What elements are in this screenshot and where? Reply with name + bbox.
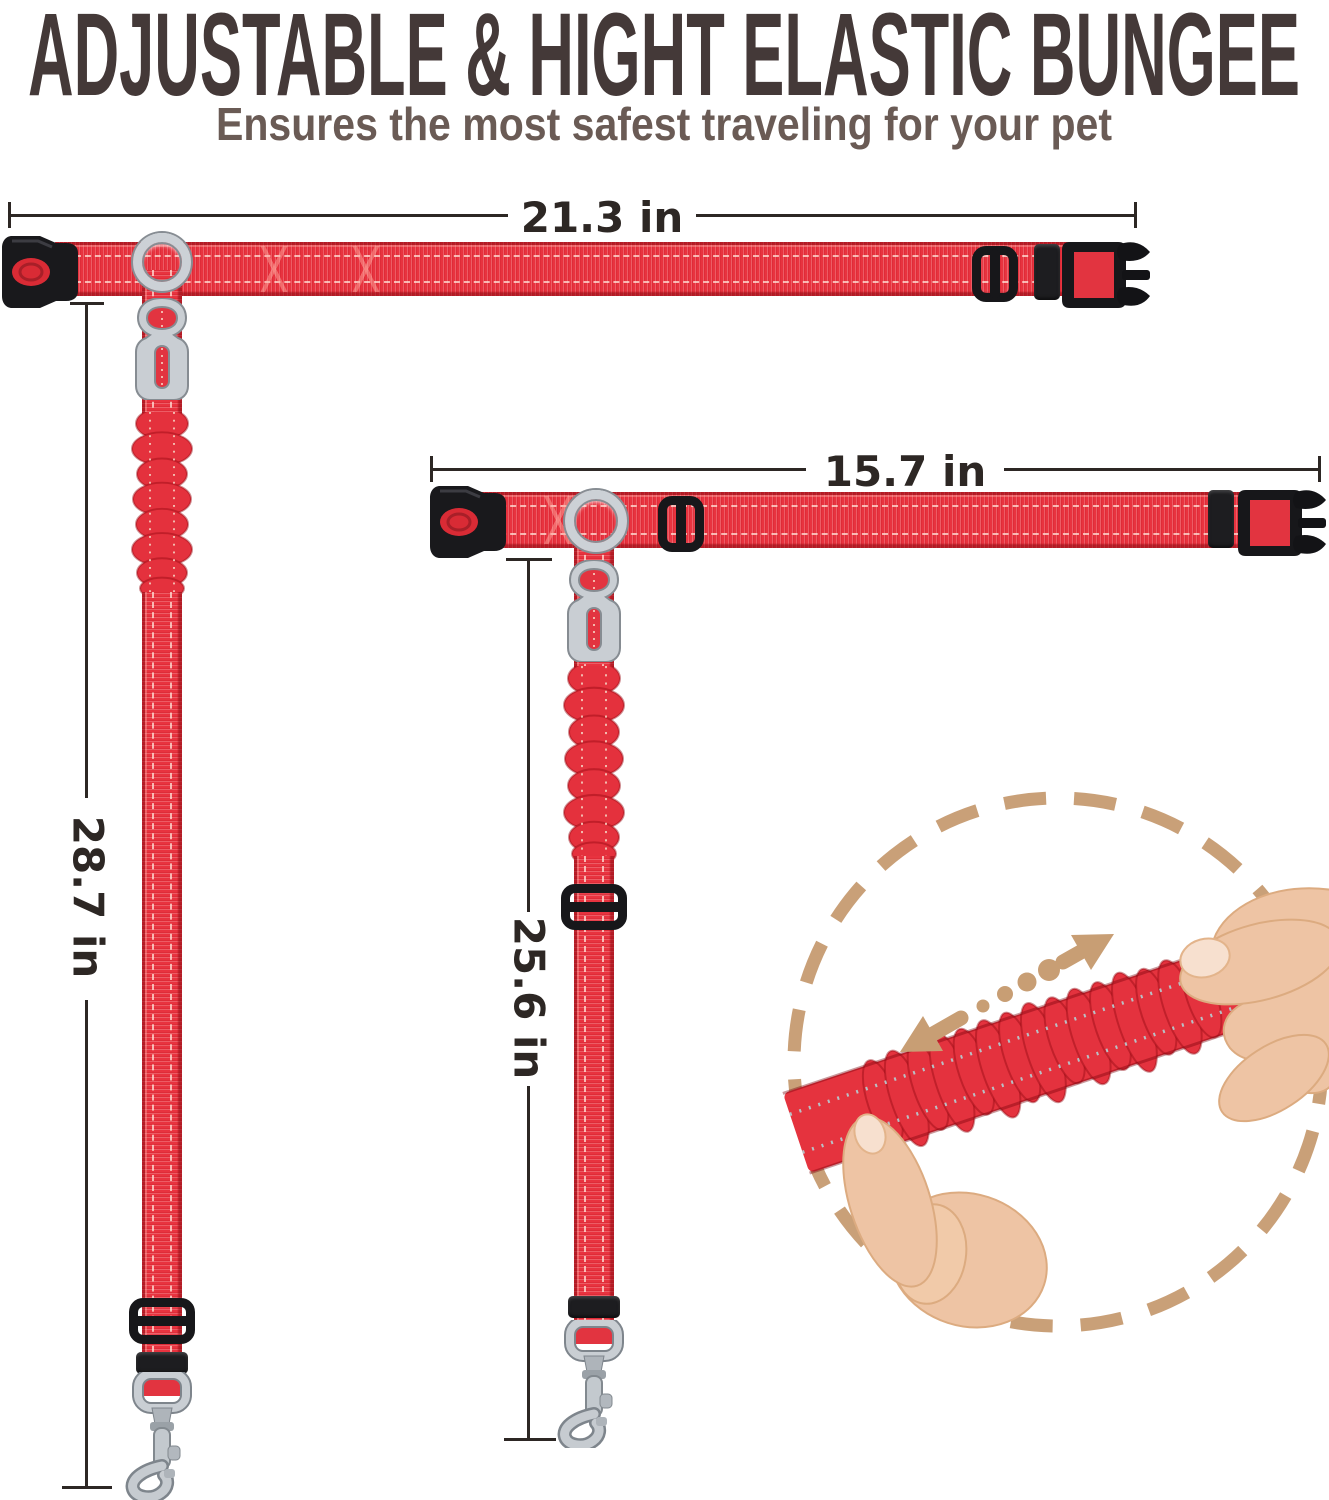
side-release-buckle-male — [1236, 486, 1328, 560]
bungee-section-small — [562, 666, 626, 862]
dimension-line-horizontal — [696, 214, 1136, 217]
header: ADJUSTABLE & HIGHT ELASTIC BUNGEE Ensure… — [0, 0, 1329, 165]
dimension-label-horizontal-small: 15.7 in — [806, 447, 1004, 496]
product-infographic: ADJUSTABLE & HIGHT ELASTIC BUNGEE Ensure… — [0, 0, 1329, 1500]
bungee-section-large — [130, 412, 194, 596]
seatbelt-latch-plate — [128, 298, 196, 400]
dimension-line-vertical — [85, 1000, 88, 1486]
bungee-stretch-inset — [780, 782, 1329, 1342]
strap-keeper — [568, 1296, 620, 1318]
dimension-line-vertical — [527, 558, 530, 912]
metal-o-ring — [565, 490, 627, 552]
slide-adjuster — [658, 496, 704, 552]
seatbelt-latch-plate — [560, 560, 628, 662]
slide-adjuster — [129, 1298, 195, 1344]
dimension-tick — [504, 1438, 556, 1441]
side-release-buckle-female — [426, 478, 510, 566]
left-hand — [825, 1106, 1065, 1342]
swivel-snap-hook — [124, 1372, 200, 1500]
dimension-line-horizontal — [8, 214, 508, 217]
strap-keeper — [1208, 490, 1234, 548]
dimension-tick — [62, 1486, 112, 1489]
strap-keeper — [1034, 244, 1060, 300]
dimension-line-horizontal — [1004, 468, 1320, 471]
dimension-tick — [1318, 456, 1321, 482]
dimension-line-vertical — [527, 1086, 530, 1438]
dimension-tick — [1134, 202, 1137, 228]
slide-adjuster — [561, 884, 627, 930]
dimension-line-vertical — [85, 302, 88, 798]
box-x-stitching — [228, 246, 412, 292]
horizontal-strap-large — [55, 242, 1098, 296]
dimension-label-vertical-large: 28.7 in — [64, 816, 113, 979]
dimension-line-horizontal — [430, 468, 806, 471]
dimension-label-horizontal-large: 21.3 in — [508, 193, 696, 242]
side-release-buckle-female — [0, 228, 80, 316]
page-subtitle: Ensures the most safest traveling for yo… — [216, 98, 1112, 150]
side-release-buckle-male — [1060, 238, 1152, 312]
strap-keeper — [136, 1352, 188, 1374]
metal-o-ring — [133, 233, 191, 291]
slide-adjuster — [972, 246, 1018, 302]
vertical-strap-large-lower — [142, 592, 182, 1382]
swivel-snap-hook — [556, 1320, 632, 1448]
dimension-label-vertical-small: 25.6 in — [505, 917, 554, 1080]
